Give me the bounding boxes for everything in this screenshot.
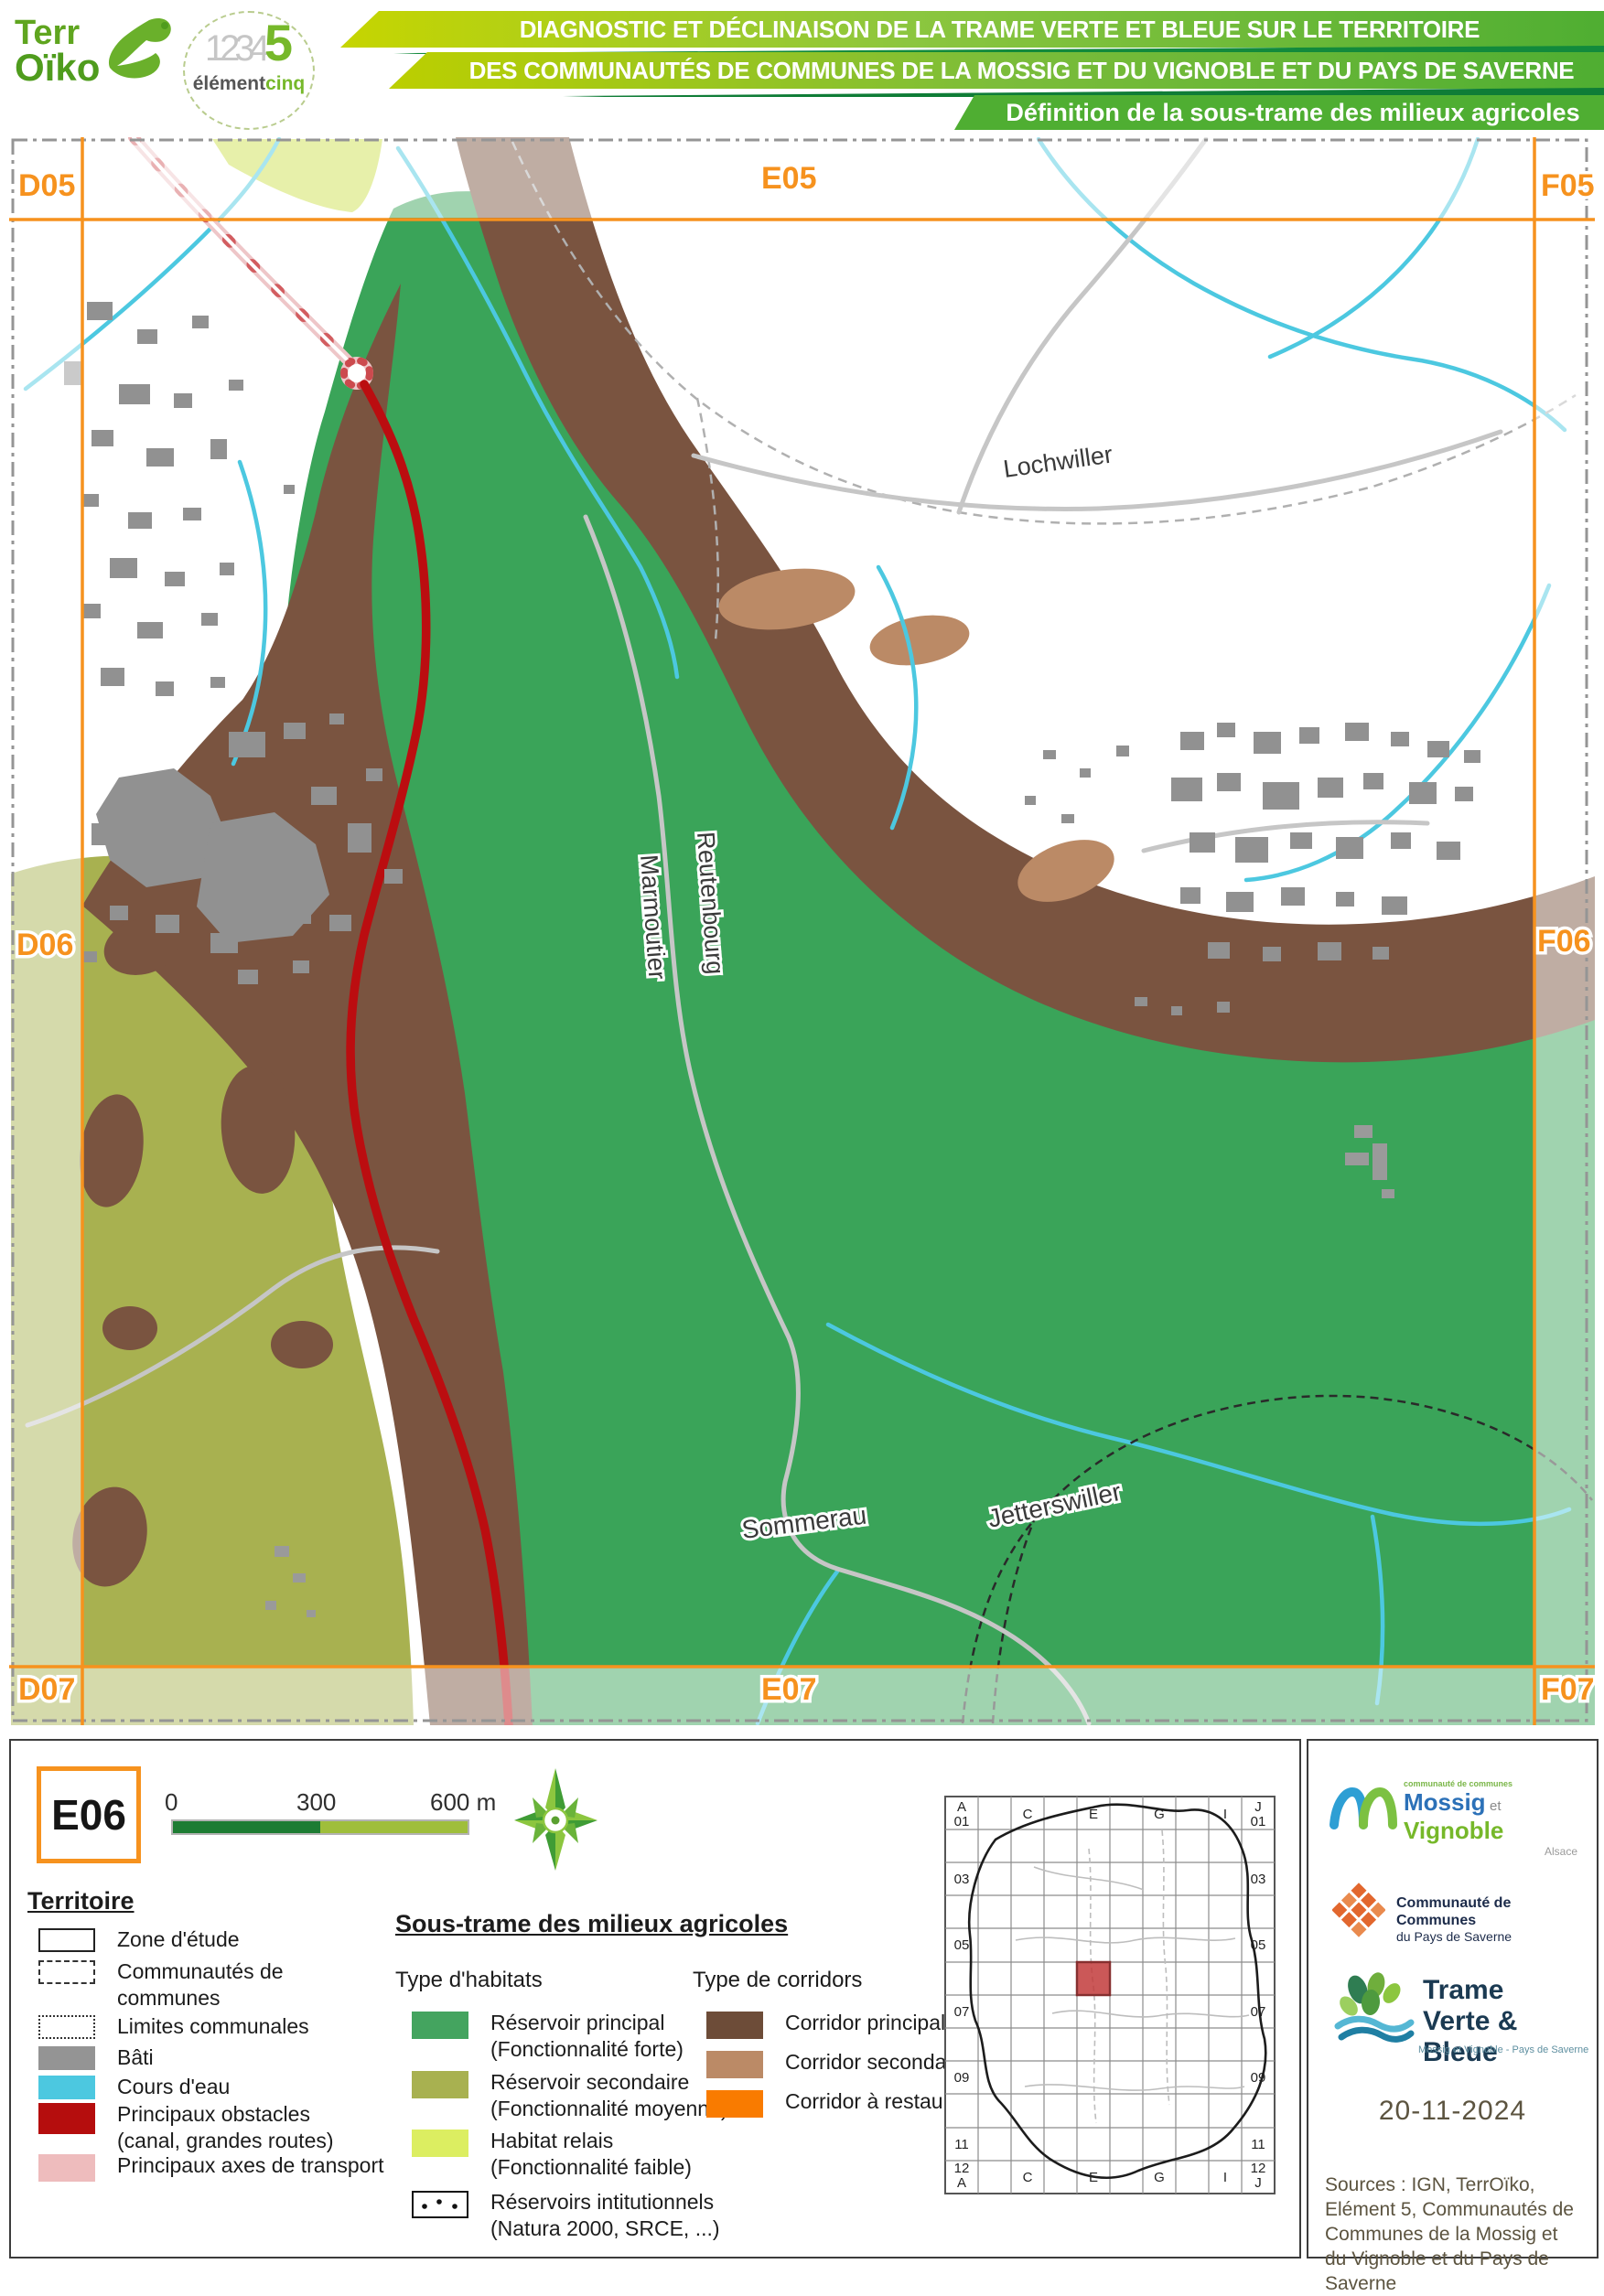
minimap-label: 09 (1251, 2070, 1266, 2086)
legend-panel: E06 0 300 600 m Territoire Zone d'étude … (9, 1739, 1301, 2258)
corridor-secondaire-swatch (706, 2051, 763, 2078)
minimap-label: 03 (1251, 1872, 1266, 1887)
obstacles-swatch (38, 2103, 95, 2134)
tvb-line1: Trame (1423, 1975, 1588, 2006)
tvb-logo (1330, 1971, 1417, 2055)
minimap-label: 12 (954, 2161, 970, 2176)
minimap-label: I (1223, 1807, 1227, 1822)
minimap-label: I (1223, 2170, 1227, 2185)
elementcinq-word2: cinq (265, 73, 305, 94)
minimap-label: 05 (954, 1937, 970, 1953)
minimap-label: J (1254, 1799, 1262, 1815)
saverne-text: Communauté de Communes du Pays de Savern… (1396, 1894, 1588, 1944)
legend-item-label: Principaux axes de transport (117, 2152, 351, 2179)
scalebar (171, 1819, 469, 1835)
grid-label: D07 (18, 1672, 75, 1707)
minimap-label: 09 (954, 2070, 970, 2086)
saverne-logo (1332, 1880, 1385, 1945)
legend-item-label: Réservoir secondaire (Fonctionnalité moy… (490, 2069, 736, 2122)
elementcinq-word1: élément (193, 73, 265, 94)
terroiko-logo: Terr Oïko (15, 16, 179, 86)
minimap-label: 01 (1251, 1814, 1266, 1829)
saverne-line1: Communauté de Communes (1396, 1894, 1588, 1929)
corridor-principal-swatch (706, 2012, 763, 2039)
scalebar-segment-2 (320, 1821, 468, 1833)
mossig-vignoble-logo (1329, 1785, 1398, 1835)
tvb-line2: Verte & Bleue (1423, 2006, 1588, 2068)
saverne-diamond-icon (1332, 1880, 1385, 1940)
minimap-label: E (1089, 2170, 1098, 2185)
minimap-label: 01 (954, 1814, 970, 1829)
minimap-label: 11 (954, 2137, 969, 2152)
elementcinq-five: 5 (264, 14, 293, 71)
axes-transport-swatch (38, 2154, 95, 2182)
mossig-wave-icon (1329, 1785, 1398, 1830)
minimap-label: A (957, 2175, 966, 2191)
map-canvas: D05 E05 F05 D06 F06 D07 E07 F07 Lochwill… (9, 137, 1595, 1725)
title-banner-2: DES COMMUNAUTÉS DE COMMUNES DE LA MOSSIG… (389, 52, 1604, 89)
limites-swatch (38, 2015, 95, 2039)
vignoble-name: Vignoble (1404, 1817, 1503, 1844)
credits-panel: communauté de communes Mossig et Vignobl… (1307, 1739, 1599, 2258)
legend-item-label: Réservoir principal (Fonctionnalité fort… (490, 2010, 730, 2063)
minimap-current-tile (1077, 1962, 1110, 1995)
mossig-et: et (1490, 1798, 1502, 1814)
grid-label: F05 (1541, 168, 1595, 203)
legend-item-label: Réservoirs intitutionnels (Natura 2000, … (490, 2189, 730, 2242)
minimap-label: A (957, 1799, 966, 1815)
tile-code-box: E06 (37, 1766, 141, 1863)
corridors-subtitle: Type de corridors (693, 1968, 862, 1993)
tvb-leaves-icon (1330, 1971, 1417, 2050)
legend-item-label: Principaux obstacles (canal, grandes rou… (117, 2101, 337, 2154)
mossig-name: Mossig (1404, 1788, 1486, 1816)
minimap-label: G (1154, 1807, 1165, 1822)
frog-icon (99, 13, 181, 86)
mossig-vignoble-text: communauté de communes Mossig et Vignobl… (1404, 1779, 1577, 1858)
compass-rose-icon (512, 1765, 599, 1874)
minimap-label: E (1089, 1807, 1098, 1822)
minimap-label: C (1023, 1807, 1033, 1822)
map-date: 20-11-2024 (1308, 2096, 1597, 2127)
zone-etude-swatch (38, 1928, 95, 1952)
minimap-label: C (1023, 2170, 1033, 2185)
minimap-label: 05 (1251, 1937, 1266, 1953)
overview-minimap: A 01 C E G I J 01 03 05 07 09 11 12 A 03… (942, 1794, 1277, 2196)
subtitle-banner: Définition de la sous-trame des milieux … (954, 95, 1604, 130)
territoire-title: Territoire (27, 1887, 135, 1915)
mossig-region: Alsace (1404, 1845, 1577, 1858)
legend-item-label: Limites communales (117, 2013, 351, 2040)
elementcinq-logo: 12345 élémentcinq (183, 11, 315, 130)
scalebar-mid: 300 (296, 1788, 336, 1817)
reservoir-secondaire-swatch (412, 2071, 468, 2098)
habitats-subtitle: Type d'habitats (395, 1968, 543, 1993)
title-banner-1: DIAGNOSTIC ET DÉCLINAISON DE LA TRAME VE… (340, 11, 1604, 48)
minimap-label: 12 (1251, 2161, 1266, 2176)
grid-label: E07 (761, 1672, 817, 1707)
grid-label: E05 (761, 161, 817, 196)
grid-label: D05 (18, 168, 75, 203)
cours-eau-swatch (38, 2076, 95, 2099)
minimap-label: 03 (954, 1872, 970, 1887)
saverne-line2: du Pays de Saverne (1396, 1929, 1588, 1944)
soustrame-title: Sous-trame des milieux agricoles (395, 1910, 788, 1938)
mossig-small-text: communauté de communes (1404, 1779, 1577, 1788)
bati-swatch (38, 2046, 95, 2070)
elementcinq-numbers: 1234 (205, 28, 264, 69)
grid-label: F06 (1537, 924, 1591, 959)
legend-item-label: Bâti (117, 2044, 351, 2071)
scalebar-end: 600 m (430, 1788, 496, 1817)
legend-item-label: Zone d'étude (117, 1926, 351, 1953)
legend-item-label: Habitat relais (Fonctionnalité faible) (490, 2128, 730, 2181)
scalebar-segment-1 (173, 1821, 320, 1833)
legend-item-label: Communautés de communes (117, 1958, 328, 2012)
minimap-label: G (1154, 2170, 1165, 2185)
reservoirs-institutionnels-swatch (412, 2191, 468, 2218)
minimap-label: 07 (1251, 2004, 1266, 2020)
tvb-subtitle: Mossig et Vignoble - Pays de Saverne (1418, 2044, 1592, 2055)
grid-label: F07 (1541, 1672, 1595, 1707)
minimap-label: 07 (954, 2004, 970, 2020)
map-sheet-page: { "header": { "terroiko": {"line1": "Ter… (0, 0, 1604, 2269)
legend-item-label: Cours d'eau (117, 2074, 351, 2100)
minimap-label: J (1254, 2175, 1262, 2191)
sources-text: Sources : IGN, TerrOïko, Elément 5, Comm… (1325, 2173, 1581, 2296)
corridor-restaurer-swatch (706, 2090, 763, 2118)
reservoir-principal-swatch (412, 2012, 468, 2039)
grid-label: D06 (16, 928, 73, 962)
communautes-swatch (38, 1960, 95, 1984)
habitat-relais-swatch (412, 2130, 468, 2157)
scalebar-start: 0 (165, 1788, 178, 1817)
minimap-label: 11 (1251, 2137, 1265, 2152)
dots-pattern-icon (414, 2193, 466, 2216)
